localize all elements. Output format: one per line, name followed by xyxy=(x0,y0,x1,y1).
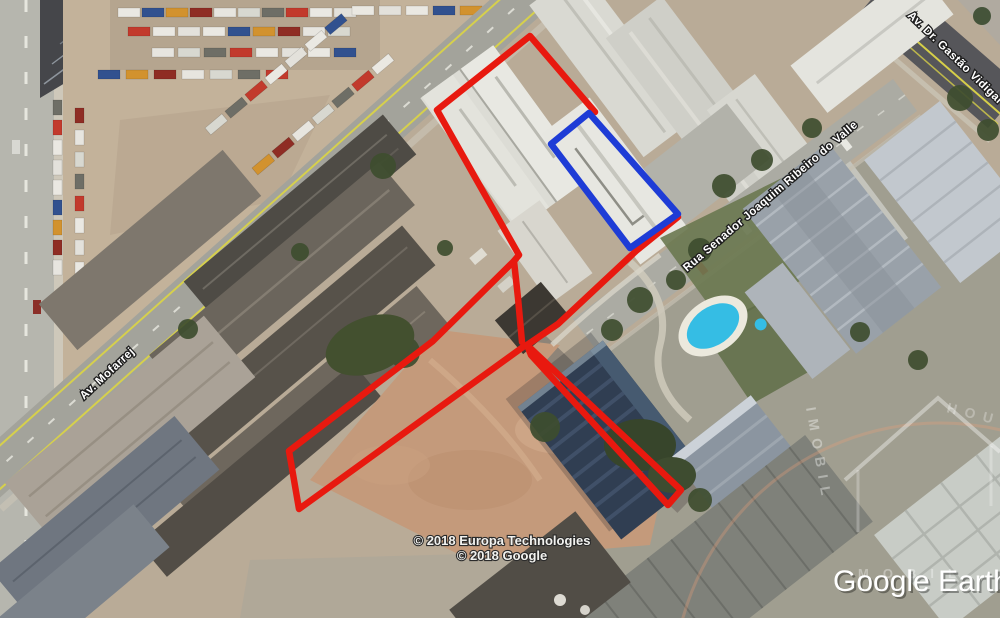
truck xyxy=(53,160,62,175)
truck xyxy=(406,6,428,15)
truck-row xyxy=(352,6,482,15)
car xyxy=(33,300,41,314)
tree xyxy=(688,488,712,512)
truck xyxy=(53,260,62,275)
truck xyxy=(126,70,148,79)
truck xyxy=(154,70,176,79)
truck xyxy=(278,27,300,36)
truck xyxy=(238,8,260,17)
tree xyxy=(977,119,999,141)
truck xyxy=(128,27,150,36)
attribution-line1: © 2018 Europa Technologies xyxy=(414,533,591,548)
truck xyxy=(286,8,308,17)
tree xyxy=(601,319,623,341)
truck xyxy=(75,130,84,145)
tree xyxy=(666,270,686,290)
tree xyxy=(973,7,991,25)
tree xyxy=(850,322,870,342)
truck xyxy=(142,8,164,17)
truck xyxy=(75,218,84,233)
truck xyxy=(75,152,84,167)
truck xyxy=(178,48,200,57)
attribution-line2: © 2018 Google xyxy=(457,548,548,563)
tree xyxy=(437,240,453,256)
aerial-map: IMOBIL HOUS MOBIL Av. Dr. Gastão Vidigal… xyxy=(0,0,1000,618)
tree xyxy=(751,149,773,171)
truck xyxy=(256,48,278,57)
truck xyxy=(53,140,62,155)
truck xyxy=(190,8,212,17)
truck xyxy=(153,27,175,36)
truck xyxy=(98,70,120,79)
truck xyxy=(75,174,84,189)
tree xyxy=(712,174,736,198)
truck xyxy=(253,27,275,36)
truck xyxy=(53,100,62,115)
truck xyxy=(262,8,284,17)
truck xyxy=(182,70,204,79)
google-earth-logo: Google Earth Google Earth xyxy=(833,565,1000,600)
truck xyxy=(178,27,200,36)
truck xyxy=(203,27,225,36)
tree xyxy=(802,118,822,138)
tree xyxy=(947,85,973,111)
truck xyxy=(152,48,174,57)
truck-row xyxy=(53,100,62,275)
storage-tank xyxy=(580,605,590,615)
truck xyxy=(75,196,84,211)
logo-text: Google Earth xyxy=(833,565,1000,598)
truck xyxy=(238,70,260,79)
truck xyxy=(53,120,62,135)
truck xyxy=(53,240,62,255)
tree xyxy=(908,350,928,370)
google-earth-screenshot: IMOBIL HOUS MOBIL Av. Dr. Gastão Vidigal… xyxy=(0,0,1000,618)
truck xyxy=(379,6,401,15)
truck xyxy=(204,48,226,57)
truck xyxy=(352,6,374,15)
truck xyxy=(75,108,84,123)
car xyxy=(12,140,20,154)
truck xyxy=(210,70,232,79)
truck xyxy=(214,8,236,17)
tree xyxy=(291,243,309,261)
truck xyxy=(53,200,62,215)
truck xyxy=(230,48,252,57)
truck xyxy=(433,6,455,15)
storage-tank xyxy=(554,594,566,606)
truck xyxy=(75,240,84,255)
truck xyxy=(166,8,188,17)
truck-row xyxy=(98,70,288,79)
truck xyxy=(53,220,62,235)
tree xyxy=(530,412,560,442)
truck xyxy=(118,8,140,17)
tree xyxy=(627,287,653,313)
truck xyxy=(53,180,62,195)
tree xyxy=(178,319,198,339)
tree xyxy=(370,153,396,179)
truck xyxy=(310,8,332,17)
truck xyxy=(228,27,250,36)
truck xyxy=(334,48,356,57)
